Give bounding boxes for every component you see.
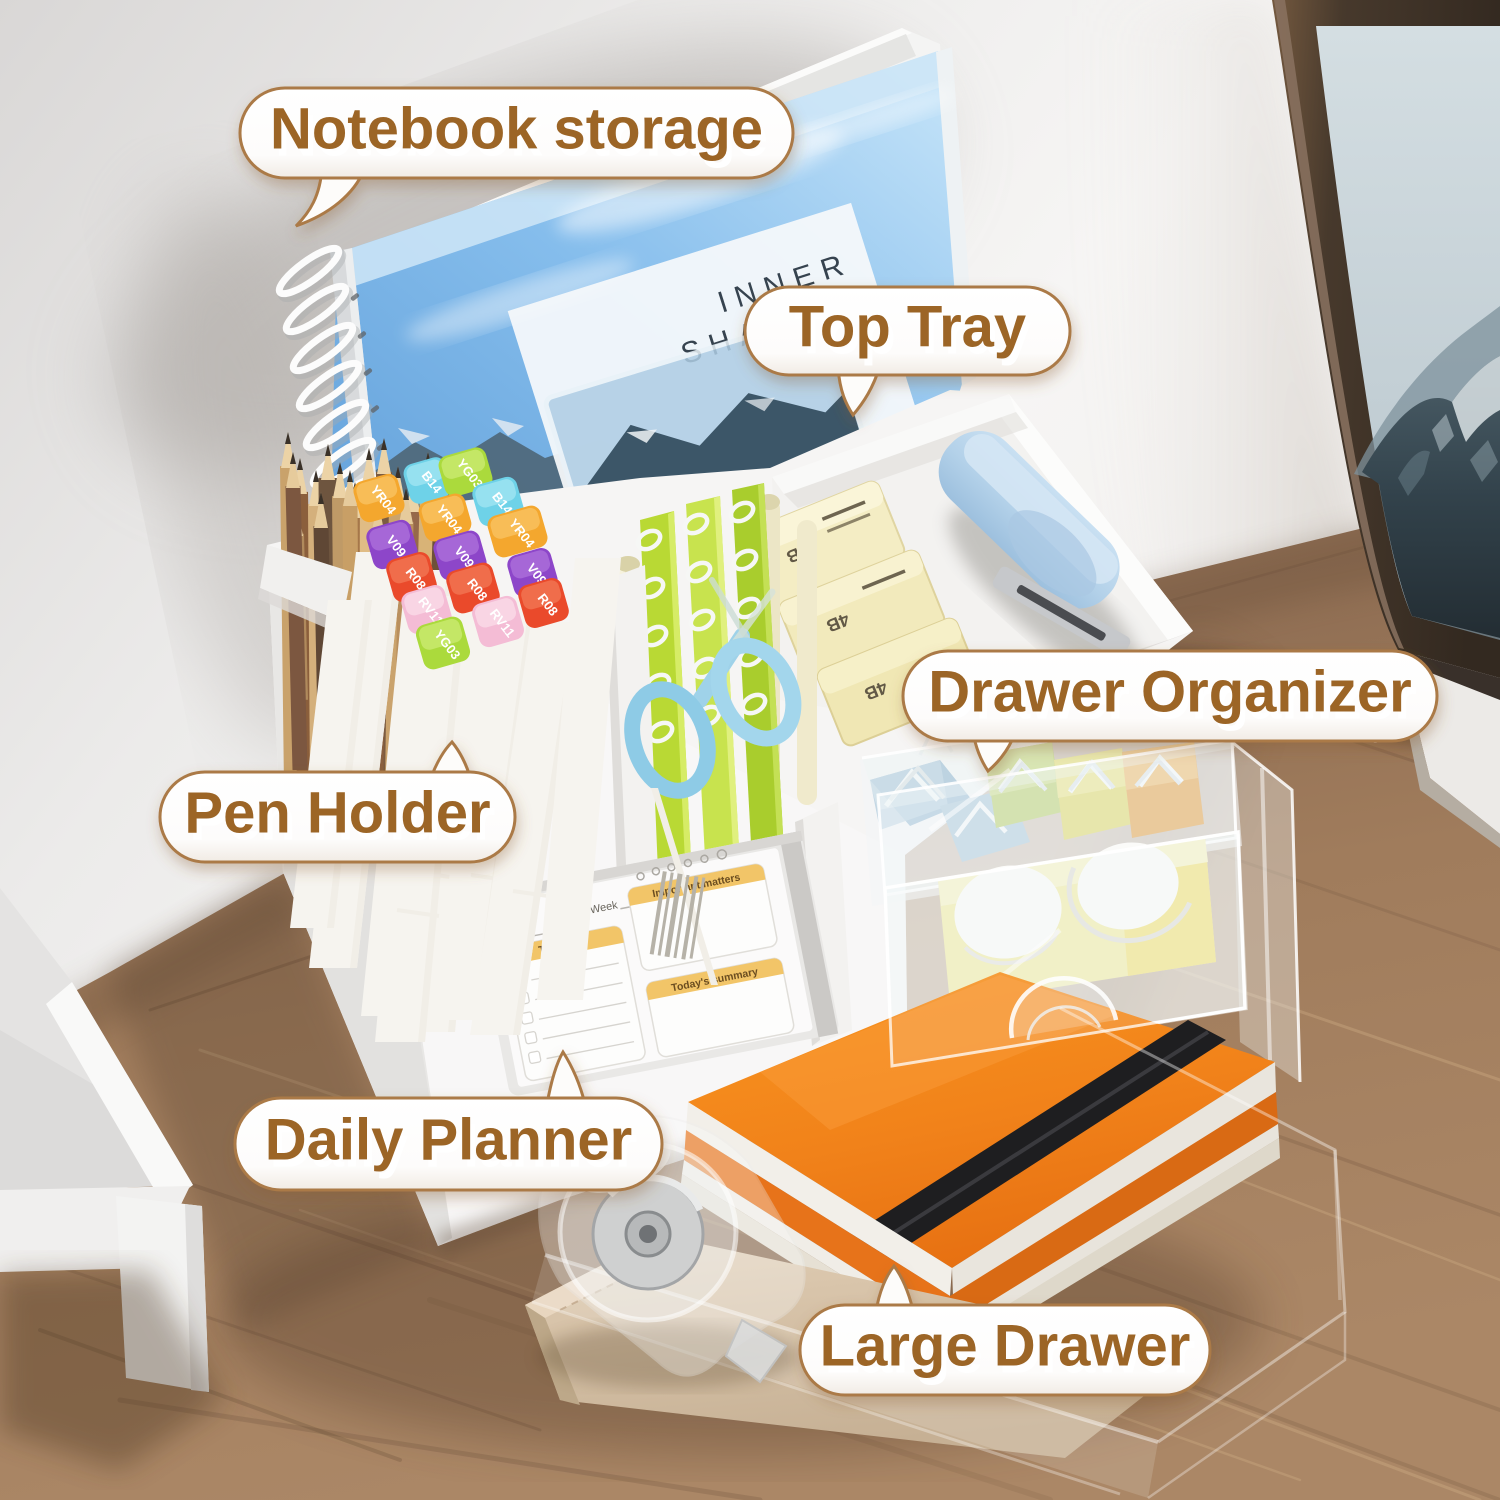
svg-text:Notebook storage: Notebook storage (270, 96, 763, 161)
svg-text:Drawer Organizer: Drawer Organizer (928, 659, 1412, 724)
svg-text:Daily Planner: Daily Planner (265, 1107, 632, 1172)
svg-text:Pen Holder: Pen Holder (184, 780, 490, 845)
svg-text:Large Drawer: Large Drawer (820, 1313, 1191, 1378)
svg-text:Top Tray: Top Tray (789, 294, 1026, 359)
